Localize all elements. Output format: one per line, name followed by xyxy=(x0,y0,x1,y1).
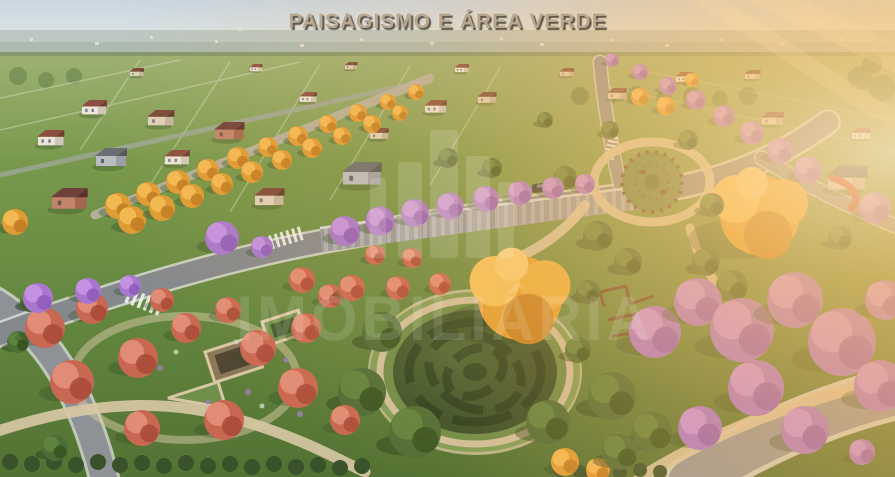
scene-canvas xyxy=(0,0,895,477)
aerial-render-image: PAISAGISMO E ÁREA VERDE IMOBILIÁRIA xyxy=(0,0,895,477)
image-title: PAISAGISMO E ÁREA VERDE xyxy=(0,10,895,34)
